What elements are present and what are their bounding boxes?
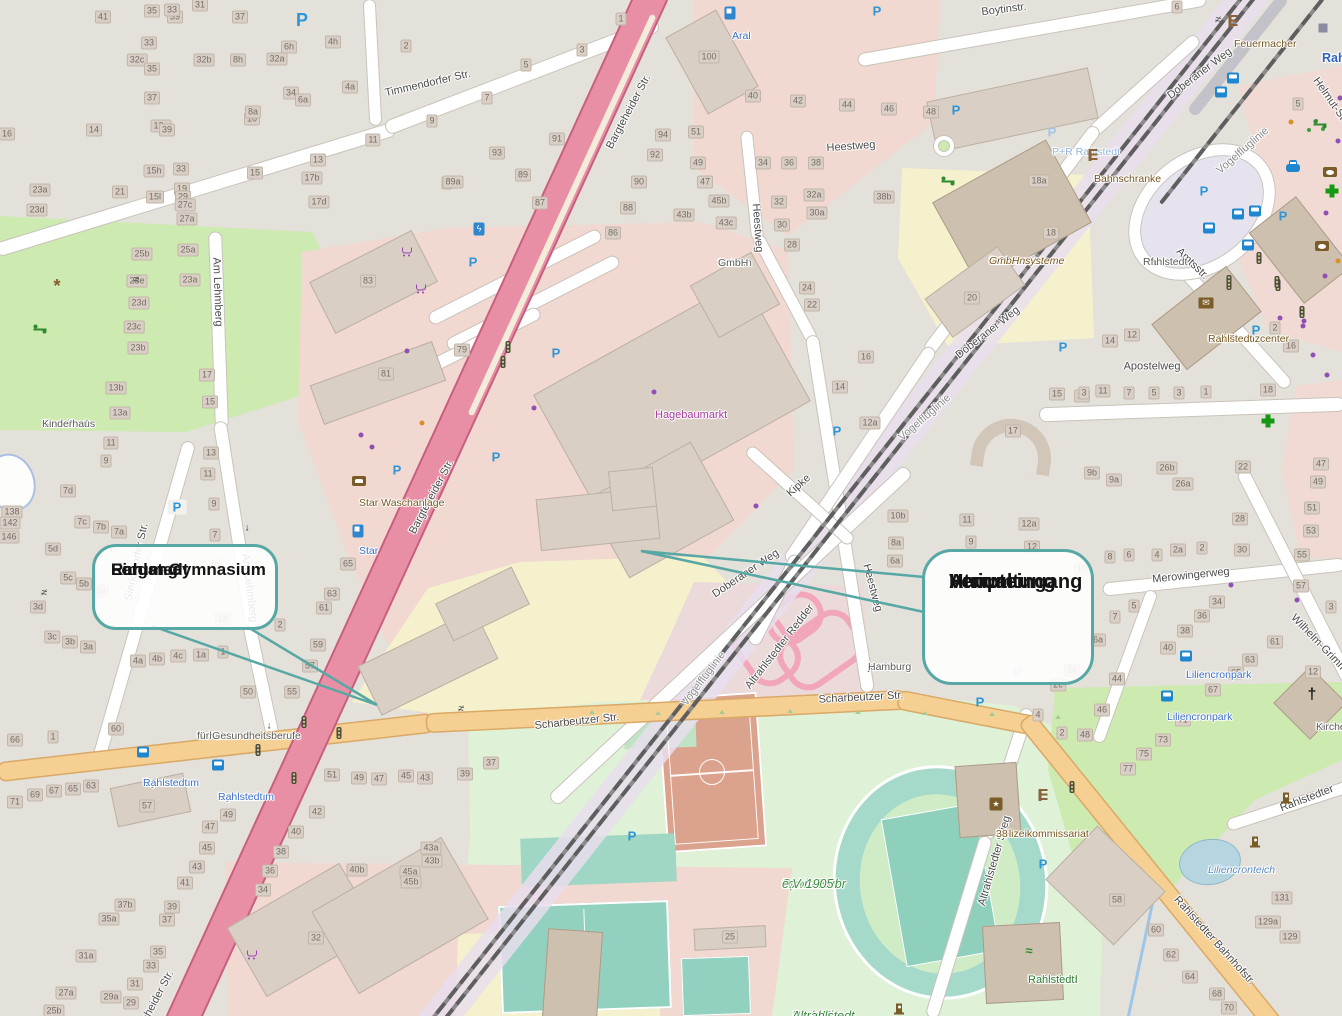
- grass-icon: [589, 710, 595, 714]
- shop-dot-icon: [1311, 353, 1316, 358]
- parking-icon: P: [976, 696, 985, 709]
- house-number: 64: [1182, 971, 1198, 984]
- signal-icon: [337, 727, 342, 739]
- house-number: 3: [1078, 387, 1089, 400]
- parking-icon: P: [469, 256, 478, 269]
- callout-haupteingang-atrium: Haupteingang Atrium Verwaltung: [922, 549, 1094, 685]
- shop-dot-icon: [1338, 96, 1342, 101]
- house-number: 15: [247, 167, 263, 180]
- street-label: Am Lehmberg: [209, 257, 224, 327]
- signal-icon: [302, 716, 307, 728]
- house-number: 129a: [1255, 916, 1281, 929]
- house-number: 25: [722, 931, 738, 944]
- house-number: 41: [95, 11, 111, 24]
- house-number: 57: [302, 660, 318, 673]
- house-number: 88: [620, 202, 636, 215]
- house-number: 21: [112, 186, 128, 199]
- house-number: 44: [1109, 673, 1125, 686]
- house-number: 41: [177, 877, 193, 890]
- house-number: 11: [959, 514, 974, 527]
- signal-icon: [506, 341, 511, 353]
- house-number: 63: [324, 588, 340, 601]
- house-number: 36: [262, 865, 278, 878]
- house-number: 4b: [149, 653, 165, 666]
- house-number: 23c: [124, 321, 145, 334]
- house-number: 55: [284, 686, 300, 699]
- house-number: 2: [1196, 542, 1207, 555]
- signal-icon: [1227, 275, 1232, 287]
- house-number: 17: [199, 369, 215, 382]
- house-number: 38b: [873, 191, 894, 204]
- house-number: 29a: [100, 991, 121, 1004]
- house-number: 32: [771, 196, 787, 209]
- house-number: 27a: [176, 213, 197, 226]
- house-number: 8a: [245, 106, 261, 119]
- arrow-icon: ↓: [245, 523, 250, 534]
- house-number: 66: [7, 734, 23, 747]
- playground-icon: [34, 325, 47, 334]
- pharmacy-icon: [1262, 415, 1275, 428]
- house-number: 9: [965, 536, 976, 549]
- house-number: 37: [483, 757, 499, 770]
- house-number: 34: [755, 157, 771, 170]
- house-number: 7d: [60, 485, 76, 498]
- house-number: 131: [1271, 892, 1292, 905]
- bus-icon: [1180, 651, 1192, 662]
- house-number: 13: [203, 447, 219, 460]
- house-number: 32a: [803, 189, 824, 202]
- house-number: 8: [1104, 551, 1115, 564]
- house-number: 37: [159, 914, 175, 927]
- playground-icon: [1314, 120, 1327, 129]
- shop-dot-icon: [405, 349, 410, 354]
- signal-icon: [1070, 781, 1075, 793]
- house-number: 33: [143, 960, 159, 973]
- house-number: 9: [100, 455, 111, 468]
- house-number: 1: [47, 731, 58, 744]
- shop-dot-icon: [370, 445, 375, 450]
- house-number: 15l: [146, 191, 164, 204]
- house-number: 17b: [301, 172, 322, 185]
- road: [783, 346, 936, 565]
- house-number: 48: [1077, 729, 1093, 742]
- memorial-icon: [1283, 793, 1289, 802]
- house-number: 47: [202, 821, 218, 834]
- house-number: 11: [200, 468, 215, 481]
- house-number: 30a: [806, 207, 827, 220]
- shop-dot-icon: [1301, 324, 1306, 329]
- house-number: 23d: [26, 204, 47, 217]
- building-horseshoe: [970, 414, 1056, 477]
- house-number: 23a: [179, 274, 200, 287]
- house-number: 6: [1171, 1, 1182, 14]
- parking-icon: P: [296, 11, 308, 29]
- shop-dot-icon: [1336, 259, 1341, 264]
- arrow-icon: ↓: [267, 721, 272, 732]
- house-number: 29: [123, 997, 139, 1010]
- house-number: 8a: [888, 537, 904, 550]
- shop-dot-icon: [1336, 139, 1341, 144]
- house-number: 11: [365, 134, 380, 147]
- fuel-icon: [353, 525, 364, 538]
- house-number: 61: [1267, 636, 1283, 649]
- house-number: 34: [1209, 596, 1225, 609]
- house-number: 36: [781, 157, 797, 170]
- signal-icon: [1300, 306, 1305, 318]
- house-number: 27c: [175, 199, 196, 212]
- house-number: 51: [324, 769, 340, 782]
- shop-dot-icon: [1295, 598, 1300, 603]
- house-number: 57: [1293, 580, 1309, 593]
- house-number: 6: [1123, 549, 1134, 562]
- house-number: 23b: [127, 342, 148, 355]
- shop-dot-icon: [1229, 583, 1234, 588]
- house-number: 81: [378, 368, 394, 381]
- house-number: 32: [308, 932, 324, 945]
- house-number: 33: [164, 4, 180, 17]
- parking-icon: P: [1252, 324, 1261, 337]
- shop-dot-icon: [1307, 128, 1311, 132]
- house-number: 28: [784, 239, 800, 252]
- house-number: 13a: [109, 407, 130, 420]
- grass-icon: [989, 712, 995, 716]
- house-number: 45: [398, 770, 414, 783]
- house-number: 18: [1043, 227, 1059, 240]
- neq-icon: ≠: [40, 586, 49, 599]
- shop-dot-icon: [1278, 316, 1283, 321]
- house-number: 59: [310, 639, 326, 652]
- house-number: 35: [150, 946, 166, 959]
- house-number: 23d: [128, 297, 149, 310]
- gate-icon: [1089, 149, 1098, 161]
- house-number: 2: [1056, 727, 1067, 740]
- house-number: 9b: [1084, 467, 1100, 480]
- house-number: 2: [400, 40, 411, 53]
- house-number: 63: [1242, 654, 1258, 667]
- house-number: 45b: [400, 876, 421, 889]
- house-number: 39: [164, 901, 180, 914]
- house-number: 17: [1005, 425, 1021, 438]
- house-number: 2a: [1170, 544, 1186, 557]
- house-number: 25b: [43, 1005, 64, 1016]
- house-number: 13: [310, 154, 326, 167]
- house-number: 42: [790, 95, 806, 108]
- house-number: 11: [1095, 385, 1110, 398]
- house-number: 90: [631, 176, 647, 189]
- house-number: 39: [159, 124, 175, 137]
- house-number: 49: [1310, 476, 1326, 489]
- house-number: 40: [288, 826, 304, 839]
- soccer-pitch: [681, 956, 751, 1016]
- house-number: 62: [1163, 949, 1179, 962]
- charge-icon: ϟ: [474, 223, 485, 236]
- house-number: 3: [1173, 387, 1184, 400]
- house-number: 4: [1151, 549, 1162, 562]
- house-number: 1: [1200, 386, 1211, 399]
- house-number: 3c: [44, 631, 60, 644]
- house-number: 7a: [111, 526, 127, 539]
- parking-icon: P: [873, 5, 882, 18]
- callout-line: Rahlstedt: [111, 556, 188, 583]
- carwash-icon: [352, 476, 366, 486]
- swim-icon: ≈: [1025, 946, 1032, 956]
- house-number: 91: [549, 133, 565, 146]
- house-number: 5: [520, 59, 531, 72]
- house-number: 16: [858, 351, 874, 364]
- house-number: 4: [1032, 709, 1043, 722]
- house-number: 3b: [62, 636, 78, 649]
- house-number: 7c: [74, 516, 90, 529]
- house-number: 11: [103, 437, 118, 450]
- house-number: 51: [688, 126, 704, 139]
- bus-icon: [1232, 209, 1244, 220]
- house-number: 23a: [29, 184, 50, 197]
- house-number: 49: [690, 157, 706, 170]
- house-number: 7: [1109, 611, 1120, 624]
- house-number: 12: [1124, 329, 1140, 342]
- house-number: 15: [1049, 388, 1065, 401]
- house-number: 73: [1155, 734, 1171, 747]
- parking-icon: P: [393, 464, 402, 477]
- grass-icon: [787, 709, 793, 713]
- house-number: 7: [209, 529, 220, 542]
- house-number: 30: [1234, 544, 1250, 557]
- house-number: 86: [605, 227, 621, 240]
- house-number: 70: [1221, 1002, 1237, 1015]
- house-number: 37: [232, 11, 248, 24]
- house-number: 53: [1303, 525, 1319, 538]
- shop-dot-icon: [1325, 373, 1330, 378]
- taxi-icon: [1286, 164, 1300, 172]
- grass-icon: [922, 711, 928, 715]
- house-number: 31a: [75, 950, 96, 963]
- house-number: 43a: [420, 842, 441, 855]
- house-number: 35: [144, 63, 160, 76]
- house-number: 18a: [1028, 175, 1049, 188]
- house-number: 26b: [1156, 462, 1177, 475]
- memorial-icon: [896, 1004, 902, 1013]
- house-number: 51: [1304, 502, 1320, 515]
- house-number: 14: [1102, 335, 1118, 348]
- shop-dot-icon: [420, 421, 425, 426]
- house-number: 43: [417, 772, 433, 785]
- grass-icon: [1055, 715, 1061, 719]
- house-number: 38: [1177, 625, 1193, 638]
- house-number: 17d: [308, 196, 329, 209]
- house-number: 40: [745, 90, 761, 103]
- police-icon: ★: [990, 798, 1003, 811]
- house-number: 89a: [442, 176, 463, 189]
- shop-dot-icon: [532, 406, 537, 411]
- memorial-icon: [1252, 837, 1258, 846]
- round-icon: [934, 136, 954, 156]
- house-number: 12: [1305, 666, 1321, 679]
- playground-icon: [942, 177, 955, 186]
- house-number: 22: [804, 299, 820, 312]
- eye-icon: [1315, 241, 1329, 251]
- house-number: 49: [351, 772, 367, 785]
- building: [982, 922, 1064, 1004]
- house-number: 43c: [716, 217, 737, 230]
- building: [541, 928, 602, 1016]
- house-number: 5c: [60, 572, 76, 585]
- house-number: 7: [481, 92, 492, 105]
- mail-icon: ✉: [1199, 298, 1214, 309]
- house-number: 18: [1260, 384, 1276, 397]
- parking-icon: P: [628, 830, 637, 843]
- signal-icon: [292, 772, 297, 784]
- house-number: 65: [65, 783, 81, 796]
- house-number: 40: [1160, 642, 1176, 655]
- house-number: 9: [426, 115, 437, 128]
- house-number: 36: [1194, 610, 1210, 623]
- house-number: 1: [615, 13, 626, 26]
- house-number: 15h: [143, 165, 164, 178]
- house-number: 37: [144, 92, 160, 105]
- house-number: 5d: [45, 543, 61, 556]
- house-number: 44: [839, 99, 855, 112]
- house-number: 16: [0, 128, 15, 141]
- house-number: 30: [774, 219, 790, 232]
- cart-icon: [246, 950, 258, 961]
- house-number: 6a: [295, 94, 311, 107]
- house-number: 9a: [1106, 474, 1122, 487]
- house-number: 34: [255, 884, 271, 897]
- grass-icon: [719, 710, 725, 714]
- pharmacy-icon: [1326, 185, 1339, 198]
- house-number: 38: [808, 157, 824, 170]
- bus-icon: [1227, 73, 1239, 84]
- house-number: 31: [127, 978, 143, 991]
- signal-icon: [501, 356, 506, 368]
- house-number: 129: [1279, 931, 1300, 944]
- house-number: 45: [199, 842, 215, 855]
- house-number: 35: [144, 5, 160, 18]
- grass-icon: [655, 711, 661, 715]
- house-number: 71: [7, 796, 23, 809]
- house-number: 79: [454, 344, 470, 357]
- parking-icon: P: [552, 347, 561, 360]
- house-number: 13b: [105, 382, 126, 395]
- house-number: 20: [964, 292, 980, 305]
- house-number: 60: [1148, 924, 1164, 937]
- house-number: 39: [457, 768, 473, 781]
- house-number: 67: [46, 785, 62, 798]
- house-number: 46: [881, 103, 897, 116]
- shop-dot-icon: [652, 390, 657, 395]
- house-number: 26a: [1172, 478, 1193, 491]
- house-number: 24: [799, 282, 815, 295]
- house-number: 142: [0, 517, 21, 530]
- house-number: 87: [532, 197, 548, 210]
- house-number: 100: [698, 51, 719, 64]
- house-number: 3: [576, 44, 587, 57]
- signal-icon: [1275, 276, 1280, 288]
- house-number: 57: [139, 800, 155, 813]
- house-number: 15: [202, 396, 218, 409]
- house-number: 61: [316, 602, 332, 615]
- house-number: 92: [647, 149, 663, 162]
- parking-icon: P: [952, 104, 961, 117]
- house-number: 14: [86, 124, 102, 137]
- shop-dot-icon: [1324, 211, 1329, 216]
- grass-icon: [855, 710, 861, 714]
- pitch-circle: [699, 759, 725, 785]
- house-number: 7b: [93, 521, 109, 534]
- house-number: 49: [220, 809, 236, 822]
- house-number: 25a: [177, 244, 198, 257]
- signal-icon: [1257, 252, 1262, 264]
- gate-icon: [1229, 15, 1238, 27]
- street-label: Boytinstr.: [981, 1, 1027, 19]
- house-number: 33: [173, 163, 189, 176]
- house-number: 65: [340, 558, 356, 571]
- bus-icon: [137, 747, 149, 758]
- house-number: 43b: [673, 209, 694, 222]
- house-number: 33: [141, 37, 157, 50]
- house-number: 46: [1094, 704, 1110, 717]
- bus-icon: [1161, 691, 1173, 702]
- house-number: 93: [489, 147, 505, 160]
- house-number: 4a: [130, 655, 146, 668]
- parking-icon: P: [1039, 858, 1048, 871]
- building: [608, 467, 657, 511]
- parking-icon: P: [1059, 341, 1068, 354]
- house-number: 5: [1292, 98, 1303, 111]
- cart-icon: [415, 284, 427, 295]
- house-number: 9: [208, 498, 219, 511]
- bus-icon: [1242, 240, 1254, 251]
- house-number: 2: [274, 619, 285, 632]
- house-number: 50: [240, 686, 256, 699]
- shop-dot-icon: [359, 433, 364, 438]
- shop-dot-icon: [1289, 120, 1294, 125]
- bus-icon: [1215, 87, 1227, 98]
- house-number: 28: [1232, 513, 1248, 526]
- house-number: 47: [697, 176, 713, 189]
- house-number: 69: [27, 789, 43, 802]
- house-number: 3a: [80, 641, 96, 654]
- parking-icon: P: [833, 425, 842, 438]
- callout-eingang-forum-gymnasium: Eingang Forum Gymnasium Rahlstedt: [92, 544, 278, 630]
- map-canvas[interactable]: Eingang Forum Gymnasium Rahlstedt Haupte…: [0, 0, 1342, 1016]
- house-number: 48: [923, 106, 939, 119]
- house-number: 5: [1148, 387, 1159, 400]
- house-number: 1a: [193, 649, 209, 662]
- house-number: 42: [309, 806, 325, 819]
- house-number: 38: [273, 846, 289, 859]
- house-number: 4c: [170, 650, 186, 663]
- house-number: 6a: [887, 555, 903, 568]
- house-number: 12a: [1018, 518, 1039, 531]
- flower-icon: *: [53, 281, 60, 291]
- house-number: 10b: [887, 510, 908, 523]
- house-number: 5b: [76, 578, 92, 591]
- house-number: 32a: [266, 53, 287, 66]
- shop-dot-icon: [754, 504, 759, 509]
- house-number: 32b: [193, 54, 214, 67]
- signal-icon: [256, 744, 261, 756]
- eye-icon: [1323, 167, 1337, 177]
- house-number: 7: [1123, 387, 1134, 400]
- house-number: 12a: [859, 417, 880, 430]
- house-number: 35a: [98, 913, 119, 926]
- house-number: 47: [1313, 458, 1329, 471]
- bus-icon: [1203, 223, 1215, 234]
- house-number: 146: [0, 531, 20, 544]
- parking-icon: P: [1048, 126, 1057, 139]
- house-number: 67: [1205, 684, 1221, 697]
